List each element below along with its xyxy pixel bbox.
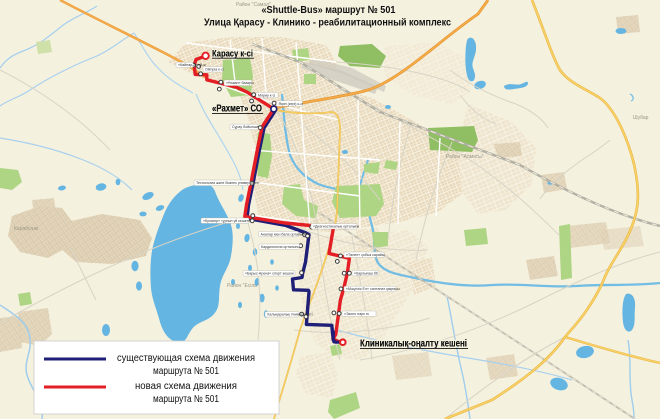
svg-text:Технология және бизнес универс: Технология және бизнес университеті	[196, 181, 259, 185]
svg-text:существующая схема движения: существующая схема движения	[117, 353, 255, 364]
svg-text:Карабулак: Карабулак	[14, 226, 39, 232]
svg-text:«Эколо парк тк: «Эколо парк тк	[344, 312, 369, 316]
svg-text:«Төлен» қобыз сарайы: «Төлен» қобыз сарайы	[346, 253, 385, 257]
svg-text:«Мәңгілік Ел» салтанат қақпасы: «Мәңгілік Ел» салтанат қақпасы	[346, 287, 400, 291]
svg-text:Кардиология орталығы: Кардиология орталығы	[261, 245, 300, 249]
svg-text:Клиникалық-оңалту кешені: Клиникалық-оңалту кешені	[360, 339, 467, 350]
svg-text:Яқин (кері) к-сі: Яқин (кері) к-сі	[279, 102, 304, 106]
svg-text:«Қарлығаш бб: «Қарлығаш бб	[354, 271, 378, 275]
svg-text:«Кулагер» тұрғын үй кешені: «Кулагер» тұрғын үй кешені	[203, 219, 250, 223]
svg-text:«Ұлжан» базары: «Ұлжан» базары	[226, 81, 254, 85]
svg-text:«Кайнар-2» үй-ж: «Кайнар-2» үй-ж	[178, 63, 206, 67]
svg-text:маршрута № 501: маршрута № 501	[153, 366, 219, 377]
svg-text:«Диагностикалық орталығы: «Диагностикалық орталығы	[313, 225, 360, 229]
svg-text:маршрута № 501: маршрута № 501	[153, 394, 219, 405]
svg-text:«Барыс-Арена» спорт кешені: «Барыс-Арена» спорт кешені	[245, 272, 294, 276]
svg-text:Халықаралық Университеті: Халықаралық Университеті	[267, 313, 313, 317]
svg-text:Район "Есіль": Район "Есіль"	[227, 282, 259, 289]
svg-text:Аналар мен бала орталығы: Аналар мен бала орталығы	[261, 232, 308, 236]
svg-text:Сұрау бойынша: Сұрау бойынша	[232, 125, 259, 129]
svg-text:«Shuttle-Bus» маршрут № 501: «Shuttle-Bus» маршрут № 501	[262, 4, 396, 16]
svg-text:Olimpia к-сі: Olimpia к-сі	[205, 68, 224, 72]
svg-text:Улица Қарасу - Клинико - реаби: Улица Қарасу - Клинико - реабилитационны…	[204, 17, 451, 29]
svg-text:Шубар: Шубар	[633, 115, 649, 121]
svg-text:«Рахмет» СО: «Рахмет» СО	[212, 103, 262, 115]
svg-text:Мәриу к-сі: Мәриу к-сі	[258, 93, 275, 97]
svg-text:Район "Алматы": Район "Алматы"	[446, 153, 484, 160]
svg-text:новая схема движения: новая схема движения	[135, 381, 237, 392]
